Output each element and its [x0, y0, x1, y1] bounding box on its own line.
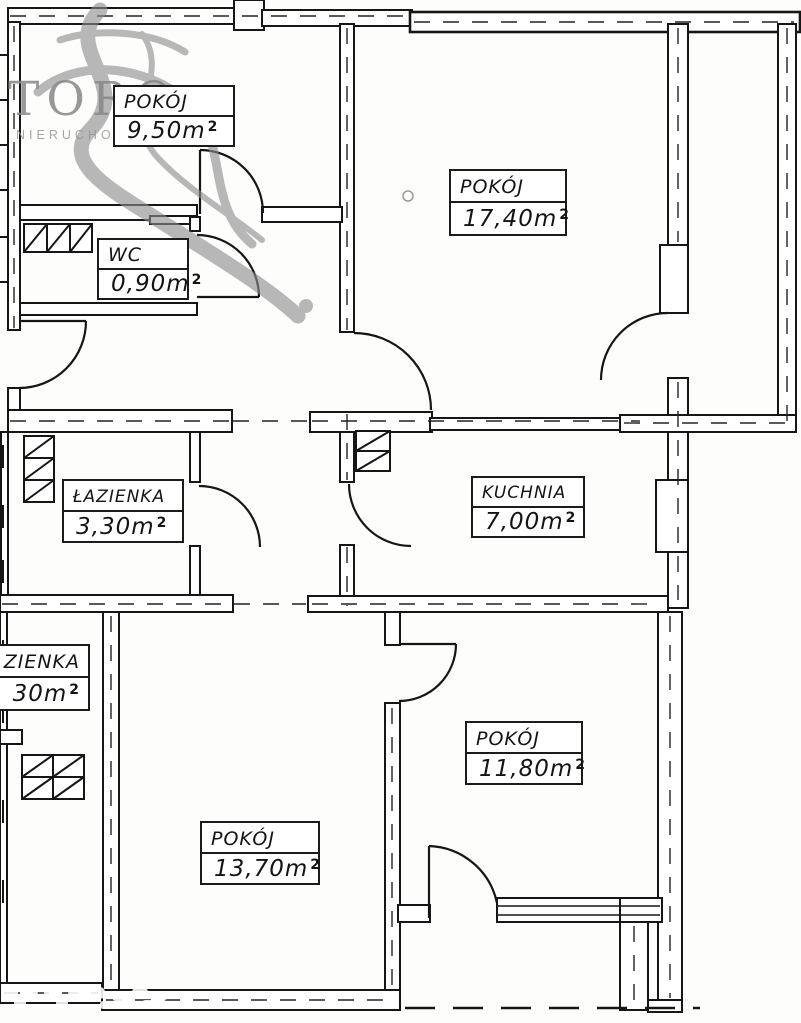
room-area: 30m2 [0, 678, 88, 709]
door-jamb-right2 [656, 480, 688, 552]
room-area: 17,40m2 [451, 203, 565, 234]
door-arc-hall [19, 321, 86, 388]
shaft-lower-left [22, 755, 84, 799]
room-name: KUCHNIA [473, 478, 583, 508]
door-arc-pokoj1370 [399, 644, 456, 701]
door-jamb-right [660, 245, 688, 313]
wall-top-mid [262, 10, 412, 26]
room-area: 9,50m2 [115, 117, 233, 145]
room-area: 3,30m2 [64, 512, 182, 541]
room-name: POKÓJ [202, 823, 318, 854]
room-area: 7,00m2 [473, 508, 583, 536]
scan-dot [403, 191, 413, 201]
wall-bottom-right-nib [648, 1000, 682, 1012]
room-area: 13,70m2 [202, 854, 318, 883]
room-name: ZIENKA [0, 646, 88, 678]
wall-lazienka-right-dn [190, 546, 200, 600]
room-label-pokoj-1180: POKÓJ 11,80m2 [465, 721, 583, 785]
room-label-lazienka: ŁAZIENKA 3,30m2 [62, 479, 184, 543]
room-label-lazienka-cut: ZIENKA 30m2 [0, 644, 90, 711]
wall-kitchen-top [430, 418, 622, 430]
room-name: WC [99, 240, 187, 270]
room-label-wc: WC 0,90m2 [97, 238, 189, 300]
wall-1180-nib [398, 905, 430, 922]
door-arc-balcony [429, 846, 497, 903]
room-name: ŁAZIENKA [64, 481, 182, 512]
wall-window-corner [620, 898, 662, 922]
door-arc-pokoj1740-sw [354, 333, 431, 410]
room-area: 11,80m2 [467, 754, 581, 783]
door-arc-lazienka [199, 486, 260, 547]
shaft-bathroom [24, 436, 54, 502]
room-label-pokoj-950: POKÓJ 9,50m2 [113, 85, 235, 147]
wall-cutroom-nib [0, 730, 22, 744]
room-name: POKÓJ [451, 171, 565, 203]
wall-wc-bottom [20, 303, 197, 315]
wall-mid-center [310, 412, 432, 432]
room-label-kuchnia: KUCHNIA 7,00m2 [471, 476, 585, 538]
shaft-kitchen [356, 431, 390, 471]
wall-lazienka-right-up [190, 432, 200, 482]
room-label-pokoj-1370: POKÓJ 13,70m2 [200, 821, 320, 885]
room-label-pokoj-1740: POKÓJ 17,40m2 [449, 169, 567, 236]
door-arc-pokoj1740-se [601, 313, 668, 380]
wall-far-right [778, 24, 796, 432]
wc-door-jamb [190, 217, 200, 231]
shaft-wc [24, 224, 92, 252]
wall-hall-top [262, 207, 342, 222]
wall-top-stub [234, 0, 264, 30]
wall-1370-right-stub [385, 612, 400, 645]
door-arc-kuchnia [349, 484, 411, 546]
room-name: POKÓJ [467, 723, 581, 754]
room-name: POKÓJ [115, 87, 233, 117]
floorplan-page: TORO NIERUCHOMOŚCI POKÓJ 9,50m2 WC 0,90m… [0, 0, 801, 1023]
room-area: 0,90m2 [99, 270, 187, 298]
